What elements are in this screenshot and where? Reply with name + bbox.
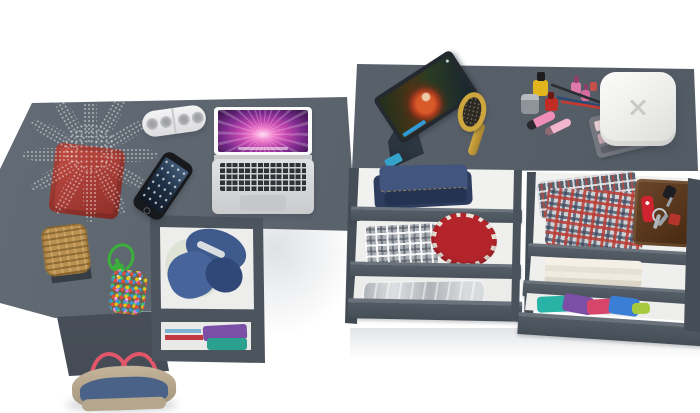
wicker-basket [40, 222, 92, 277]
jewelry-box [600, 72, 676, 146]
storage-divider [153, 309, 261, 323]
laptop-dock [238, 147, 288, 150]
laptop [214, 107, 318, 217]
plant-leaf [83, 167, 97, 223]
room-scene [0, 0, 700, 413]
speaker-grille [159, 115, 173, 129]
laptop-screen [218, 110, 308, 152]
nail-polish-red [545, 98, 558, 111]
drawer-front [351, 207, 522, 224]
nail-polish-cap [548, 92, 554, 99]
speaker-seam [171, 108, 177, 134]
drawer-front [348, 298, 522, 322]
speaker-grille [177, 113, 191, 127]
red-key-tag [668, 213, 681, 226]
nail-polish-cap [537, 72, 545, 81]
speaker-grille [145, 117, 159, 131]
knife-cross [646, 201, 648, 205]
nail-polish-small [590, 82, 597, 91]
plant-center [64, 124, 116, 172]
cream-jar [521, 94, 539, 114]
speaker-grille [191, 111, 205, 125]
tablet-screen [378, 55, 474, 139]
folded-clothes-red-strip [165, 335, 203, 340]
folded-clothes-teal [207, 338, 247, 350]
plaid-shirt-front [545, 187, 646, 250]
laptop-keyboard [220, 163, 306, 191]
nail-polish-cap [584, 84, 588, 90]
plant-leaves [35, 93, 145, 203]
nail-polish-cap [574, 76, 579, 83]
laptop-trackpad [240, 195, 286, 211]
bead-pouch [108, 268, 148, 316]
clothes-lime [632, 303, 650, 314]
folded-clothes-blue-strip [165, 329, 201, 333]
